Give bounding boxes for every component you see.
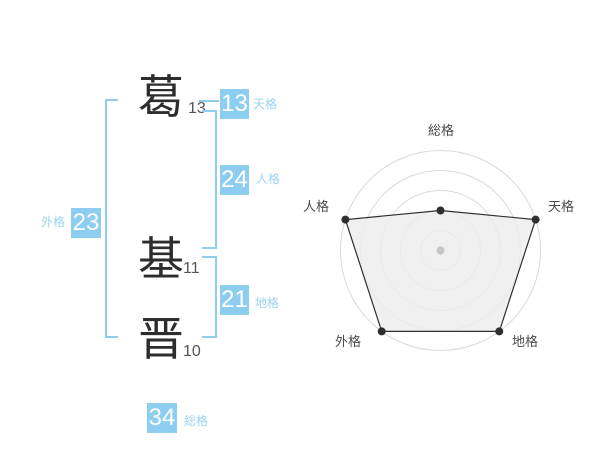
gaikaku-label: 外格 — [41, 215, 65, 229]
jinkaku-badge: 24 — [220, 165, 249, 195]
radar-vertex-dot — [341, 216, 349, 224]
given-character-1: 基 — [137, 236, 185, 282]
radar-axis-label-tenkaku: 天格 — [548, 200, 574, 214]
radar-axis-label-jinkaku: 人格 — [303, 200, 329, 214]
radar-axis-label-soukaku: 総格 — [426, 124, 456, 138]
tenkaku-connector — [199, 100, 219, 102]
stroke-count-3: 10 — [183, 344, 201, 360]
soukaku-value: 34 — [149, 406, 176, 430]
radar-vertex-dot — [378, 327, 386, 335]
jinkaku-value: 24 — [221, 168, 248, 192]
radar-data-polygon — [345, 211, 535, 332]
soukaku-label: 総格 — [184, 414, 208, 428]
soukaku-badge: 34 — [147, 403, 177, 433]
gaikaku-badge: 23 — [71, 208, 101, 238]
stroke-count-2: 11 — [183, 261, 200, 277]
radar-axis-label-gaikaku: 外格 — [335, 335, 361, 349]
tenkaku-label: 天格 — [253, 97, 277, 111]
tenkaku-value: 13 — [221, 92, 248, 116]
radar-chart — [300, 100, 581, 370]
jinkaku-bracket — [202, 110, 217, 249]
surname-character-1: 葛 — [137, 74, 185, 120]
radar-center-dot — [437, 247, 445, 255]
jinkaku-label: 人格 — [256, 172, 280, 186]
radar-vertex-dot — [437, 207, 445, 215]
radar-axis-label-chikaku: 地格 — [512, 335, 538, 349]
tenkaku-badge: 13 — [220, 89, 249, 119]
gaikaku-bracket — [105, 99, 118, 338]
chikaku-value: 21 — [221, 288, 248, 312]
chikaku-bracket — [202, 256, 217, 338]
seimei-handan-panel: 葛 13 基 11 晋 10 13 天格 24 人格 21 地格 外格 23 3… — [0, 0, 600, 470]
radar-vertex-dot — [532, 216, 540, 224]
radar-vertex-dot — [495, 327, 503, 335]
chikaku-label: 地格 — [255, 296, 279, 310]
given-character-2: 晋 — [137, 316, 185, 362]
gaikaku-value: 23 — [73, 211, 100, 235]
chikaku-badge: 21 — [220, 285, 249, 315]
